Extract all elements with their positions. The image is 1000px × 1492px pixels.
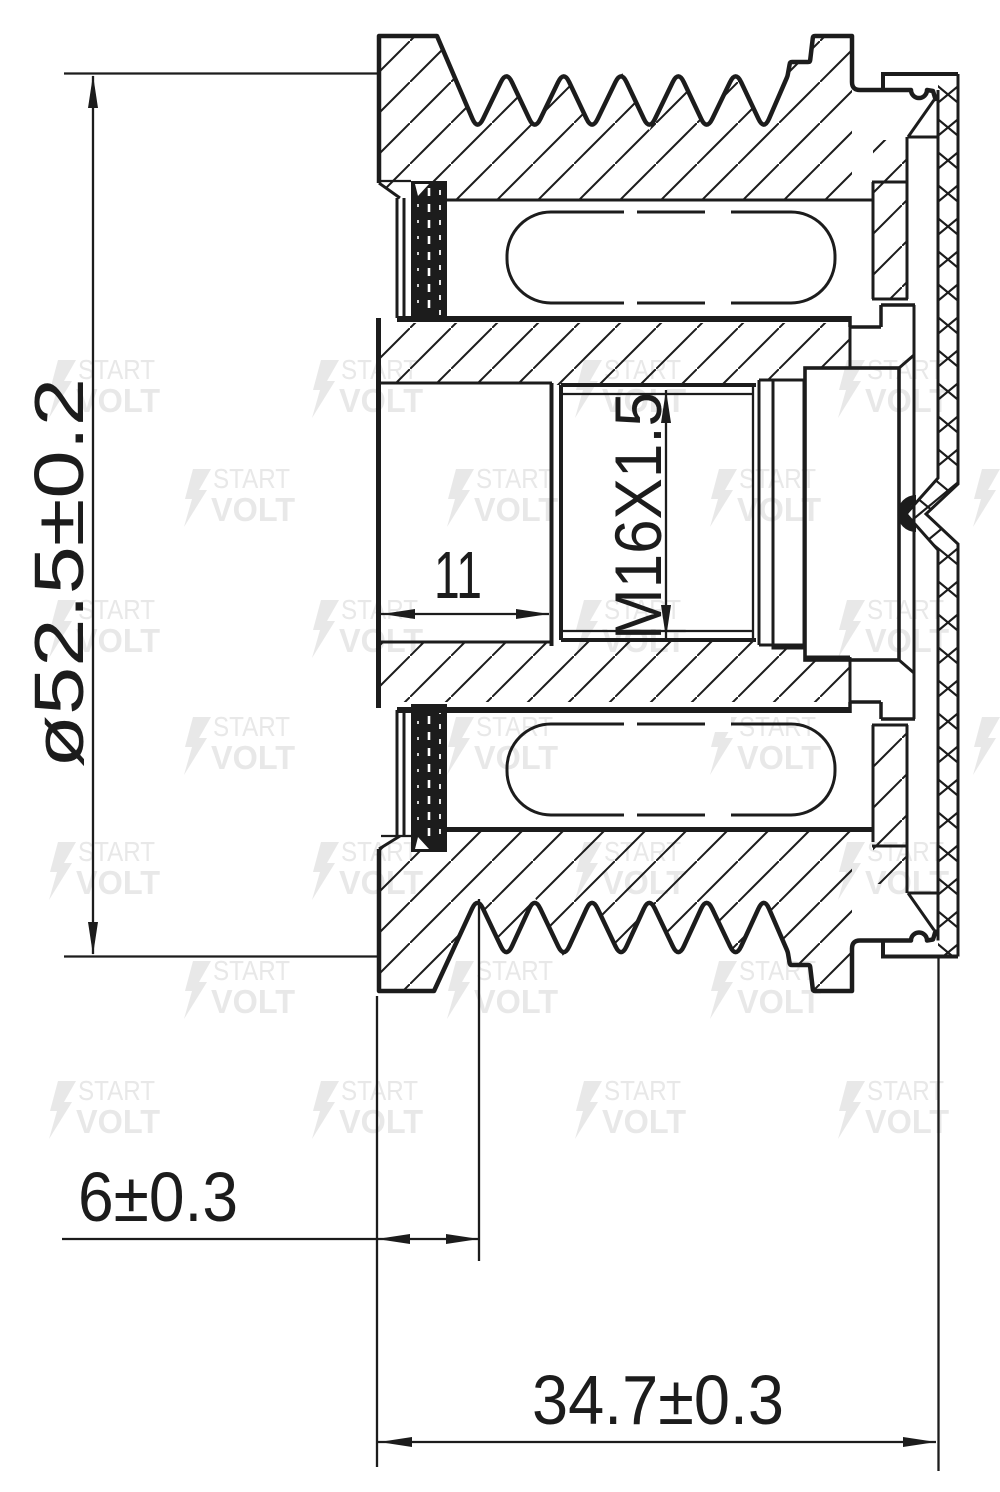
- svg-text:VOLT: VOLT: [339, 1103, 423, 1140]
- svg-text:START: START: [78, 836, 155, 867]
- svg-text:START: START: [867, 594, 944, 625]
- svg-text:VOLT: VOLT: [737, 983, 821, 1020]
- svg-text:VOLT: VOLT: [76, 1103, 160, 1140]
- svg-text:M16X1.5: M16X1.5: [601, 392, 675, 640]
- svg-text:START: START: [213, 711, 290, 742]
- svg-text:ø52.5±0.2: ø52.5±0.2: [20, 378, 98, 768]
- svg-text:VOLT: VOLT: [76, 864, 160, 901]
- svg-text:VOLT: VOLT: [865, 622, 949, 659]
- svg-text:VOLT: VOLT: [602, 1103, 686, 1140]
- svg-text:START: START: [213, 463, 290, 494]
- svg-text:START: START: [78, 1075, 155, 1106]
- svg-text:VOLT: VOLT: [737, 491, 821, 528]
- svg-text:VOLT: VOLT: [211, 739, 295, 776]
- svg-text:11: 11: [434, 538, 482, 613]
- svg-text:VOLT: VOLT: [474, 983, 558, 1020]
- svg-text:VOLT: VOLT: [474, 491, 558, 528]
- svg-text:VOLT: VOLT: [737, 739, 821, 776]
- svg-text:VOLT: VOLT: [865, 1103, 949, 1140]
- svg-text:34.7±0.3: 34.7±0.3: [532, 1361, 784, 1439]
- svg-text:START: START: [867, 1075, 944, 1106]
- svg-text:VOLT: VOLT: [474, 739, 558, 776]
- svg-text:START: START: [476, 955, 553, 986]
- svg-text:START: START: [341, 1075, 418, 1106]
- svg-text:VOLT: VOLT: [865, 382, 949, 419]
- svg-text:VOLT: VOLT: [211, 983, 295, 1020]
- svg-text:6±0.3: 6±0.3: [78, 1158, 238, 1236]
- svg-text:START: START: [604, 1075, 681, 1106]
- svg-text:START: START: [476, 711, 553, 742]
- svg-text:START: START: [476, 463, 553, 494]
- svg-text:VOLT: VOLT: [211, 491, 295, 528]
- svg-text:START: START: [213, 955, 290, 986]
